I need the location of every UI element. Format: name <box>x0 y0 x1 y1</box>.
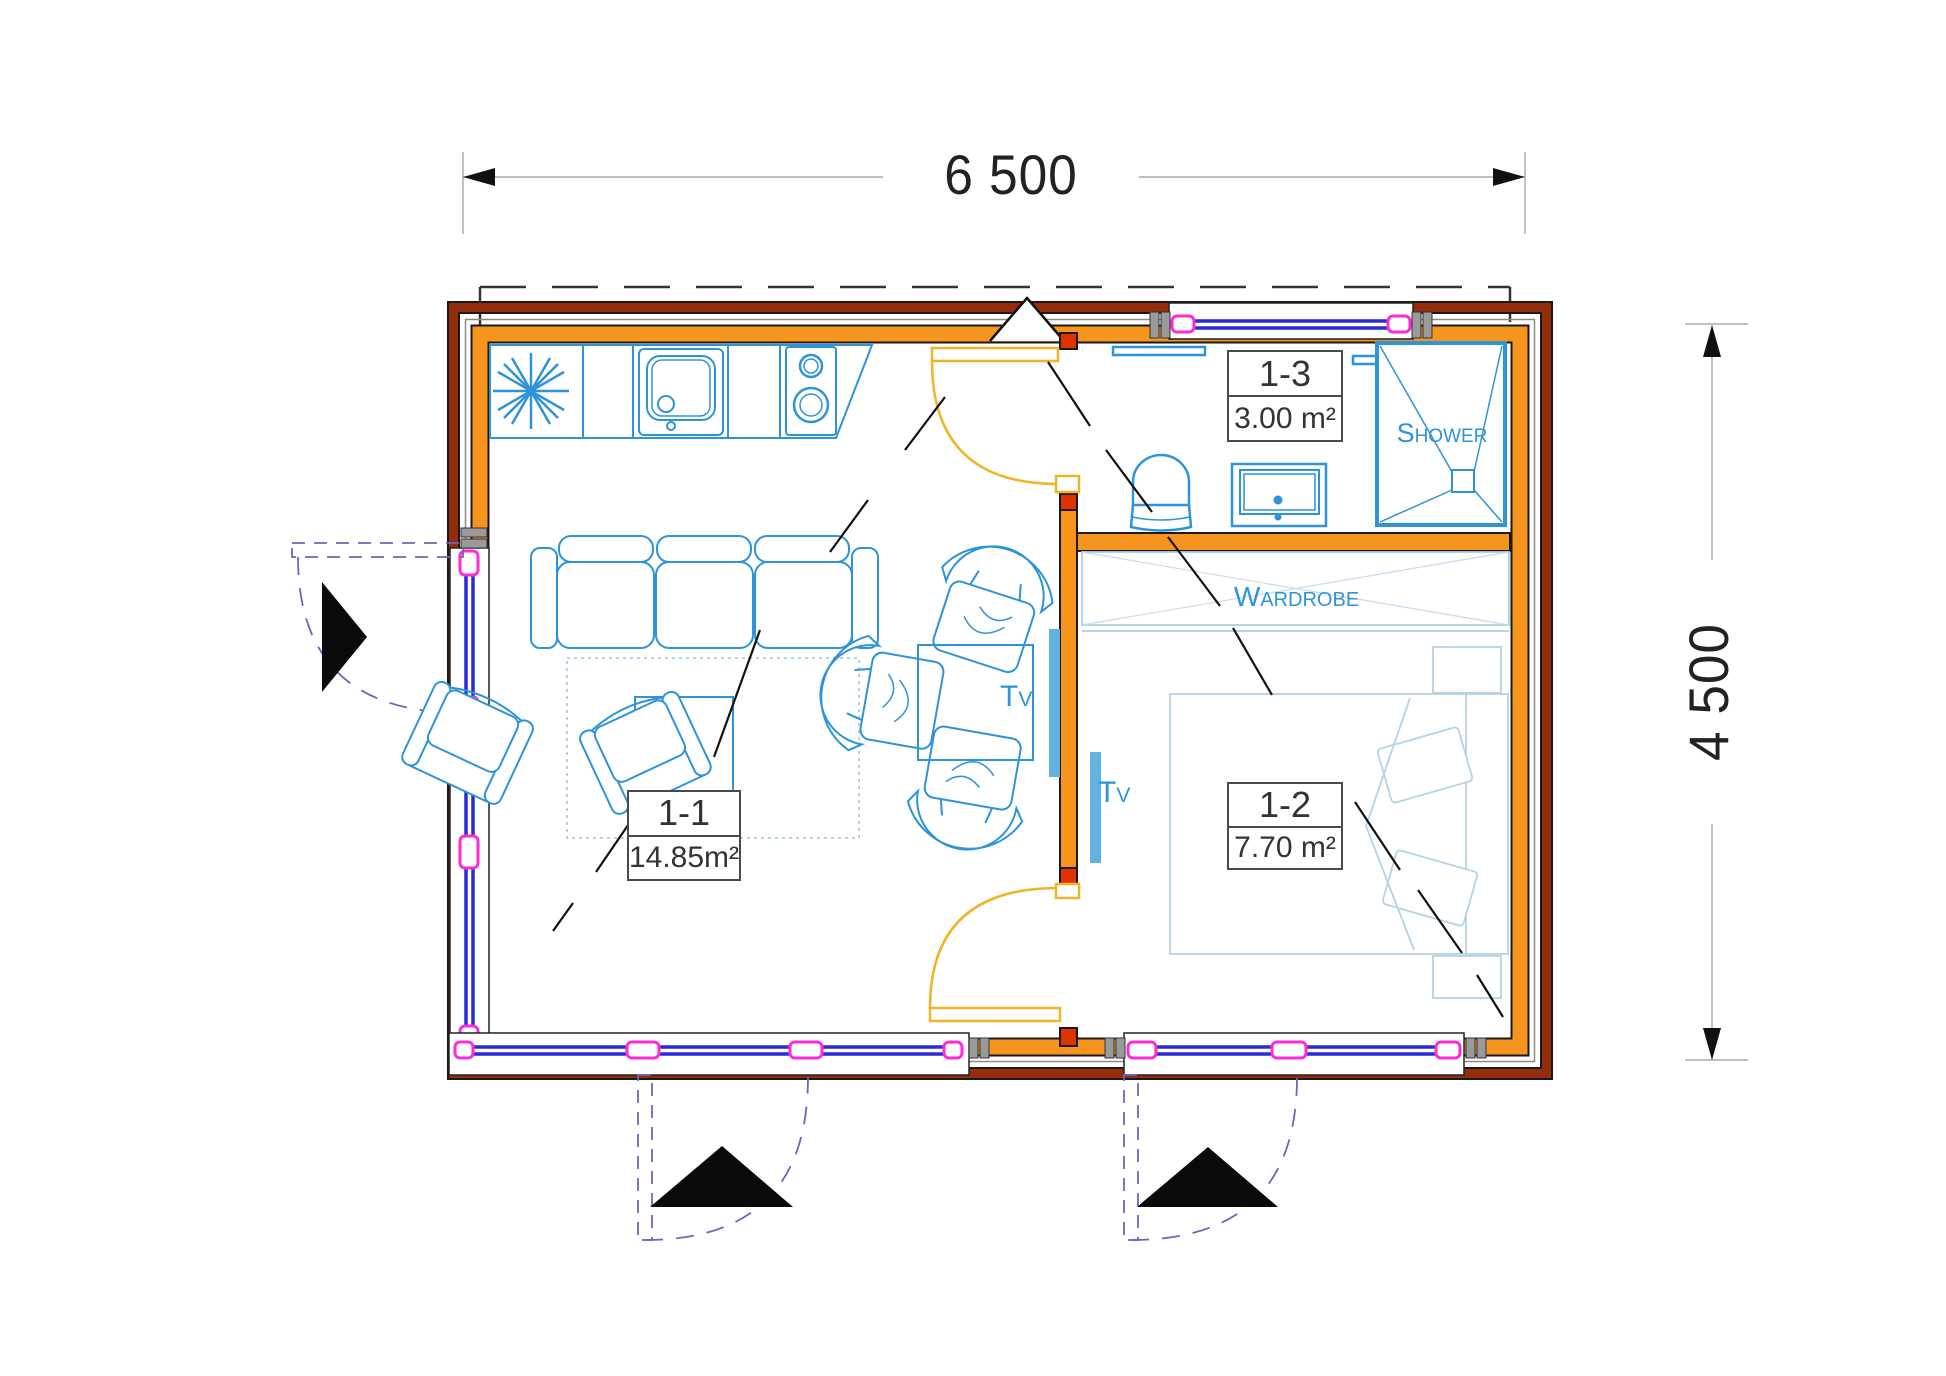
room-label-living: 1-1 14.85m² <box>627 790 741 881</box>
room-area: 7.70 m² <box>1229 828 1341 868</box>
floor-plan-page: 6 500 4 500 1-1 14.85m² 1-2 7.70 m² 1-3 … <box>0 0 1946 1376</box>
tv-bedroom-label: Tv <box>1098 776 1158 810</box>
room-id: 1-2 <box>1229 784 1341 828</box>
bedroom-door <box>930 884 1079 1021</box>
wardrobe-label: Wardrobe <box>1214 581 1379 613</box>
sofa <box>531 536 878 648</box>
kitchen-stove <box>786 347 836 435</box>
dimension-height-label: 4 500 <box>1676 560 1746 824</box>
entrance-arrow-bottom-bedroom <box>1137 1147 1278 1207</box>
kitchen-star-burner <box>493 353 569 429</box>
kitchen-sink <box>639 349 723 435</box>
room-area: 3.00 m² <box>1229 397 1341 440</box>
shower-label: Shower <box>1381 418 1503 449</box>
dimension-width-label: 6 500 <box>883 142 1139 207</box>
room-id: 1-1 <box>629 792 739 837</box>
glazed-wall-bottom-living <box>449 1033 969 1075</box>
vanity-sink <box>1232 464 1326 526</box>
room-area: 14.85m² <box>629 837 739 880</box>
tv-living-label: Tv <box>1000 680 1060 714</box>
bathroom-door <box>932 348 1079 492</box>
toilet <box>1131 455 1191 531</box>
room-label-bedroom: 1-2 7.70 m² <box>1227 782 1343 870</box>
room-label-bathroom: 1-3 3.00 m² <box>1227 350 1343 442</box>
bathroom-bottom-wall <box>1077 533 1510 551</box>
entrance-arrow-left <box>322 582 367 692</box>
room-id: 1-3 <box>1229 352 1341 397</box>
armchair-left <box>400 676 538 807</box>
window-bathroom-top <box>1150 303 1432 339</box>
window-bottom-bedroom <box>1124 1033 1464 1075</box>
partition-wall <box>1060 333 1077 1046</box>
entrance-arrow-bottom-living <box>650 1146 793 1207</box>
dining-chair-top <box>917 531 1064 679</box>
dining-chair-left <box>811 629 947 764</box>
